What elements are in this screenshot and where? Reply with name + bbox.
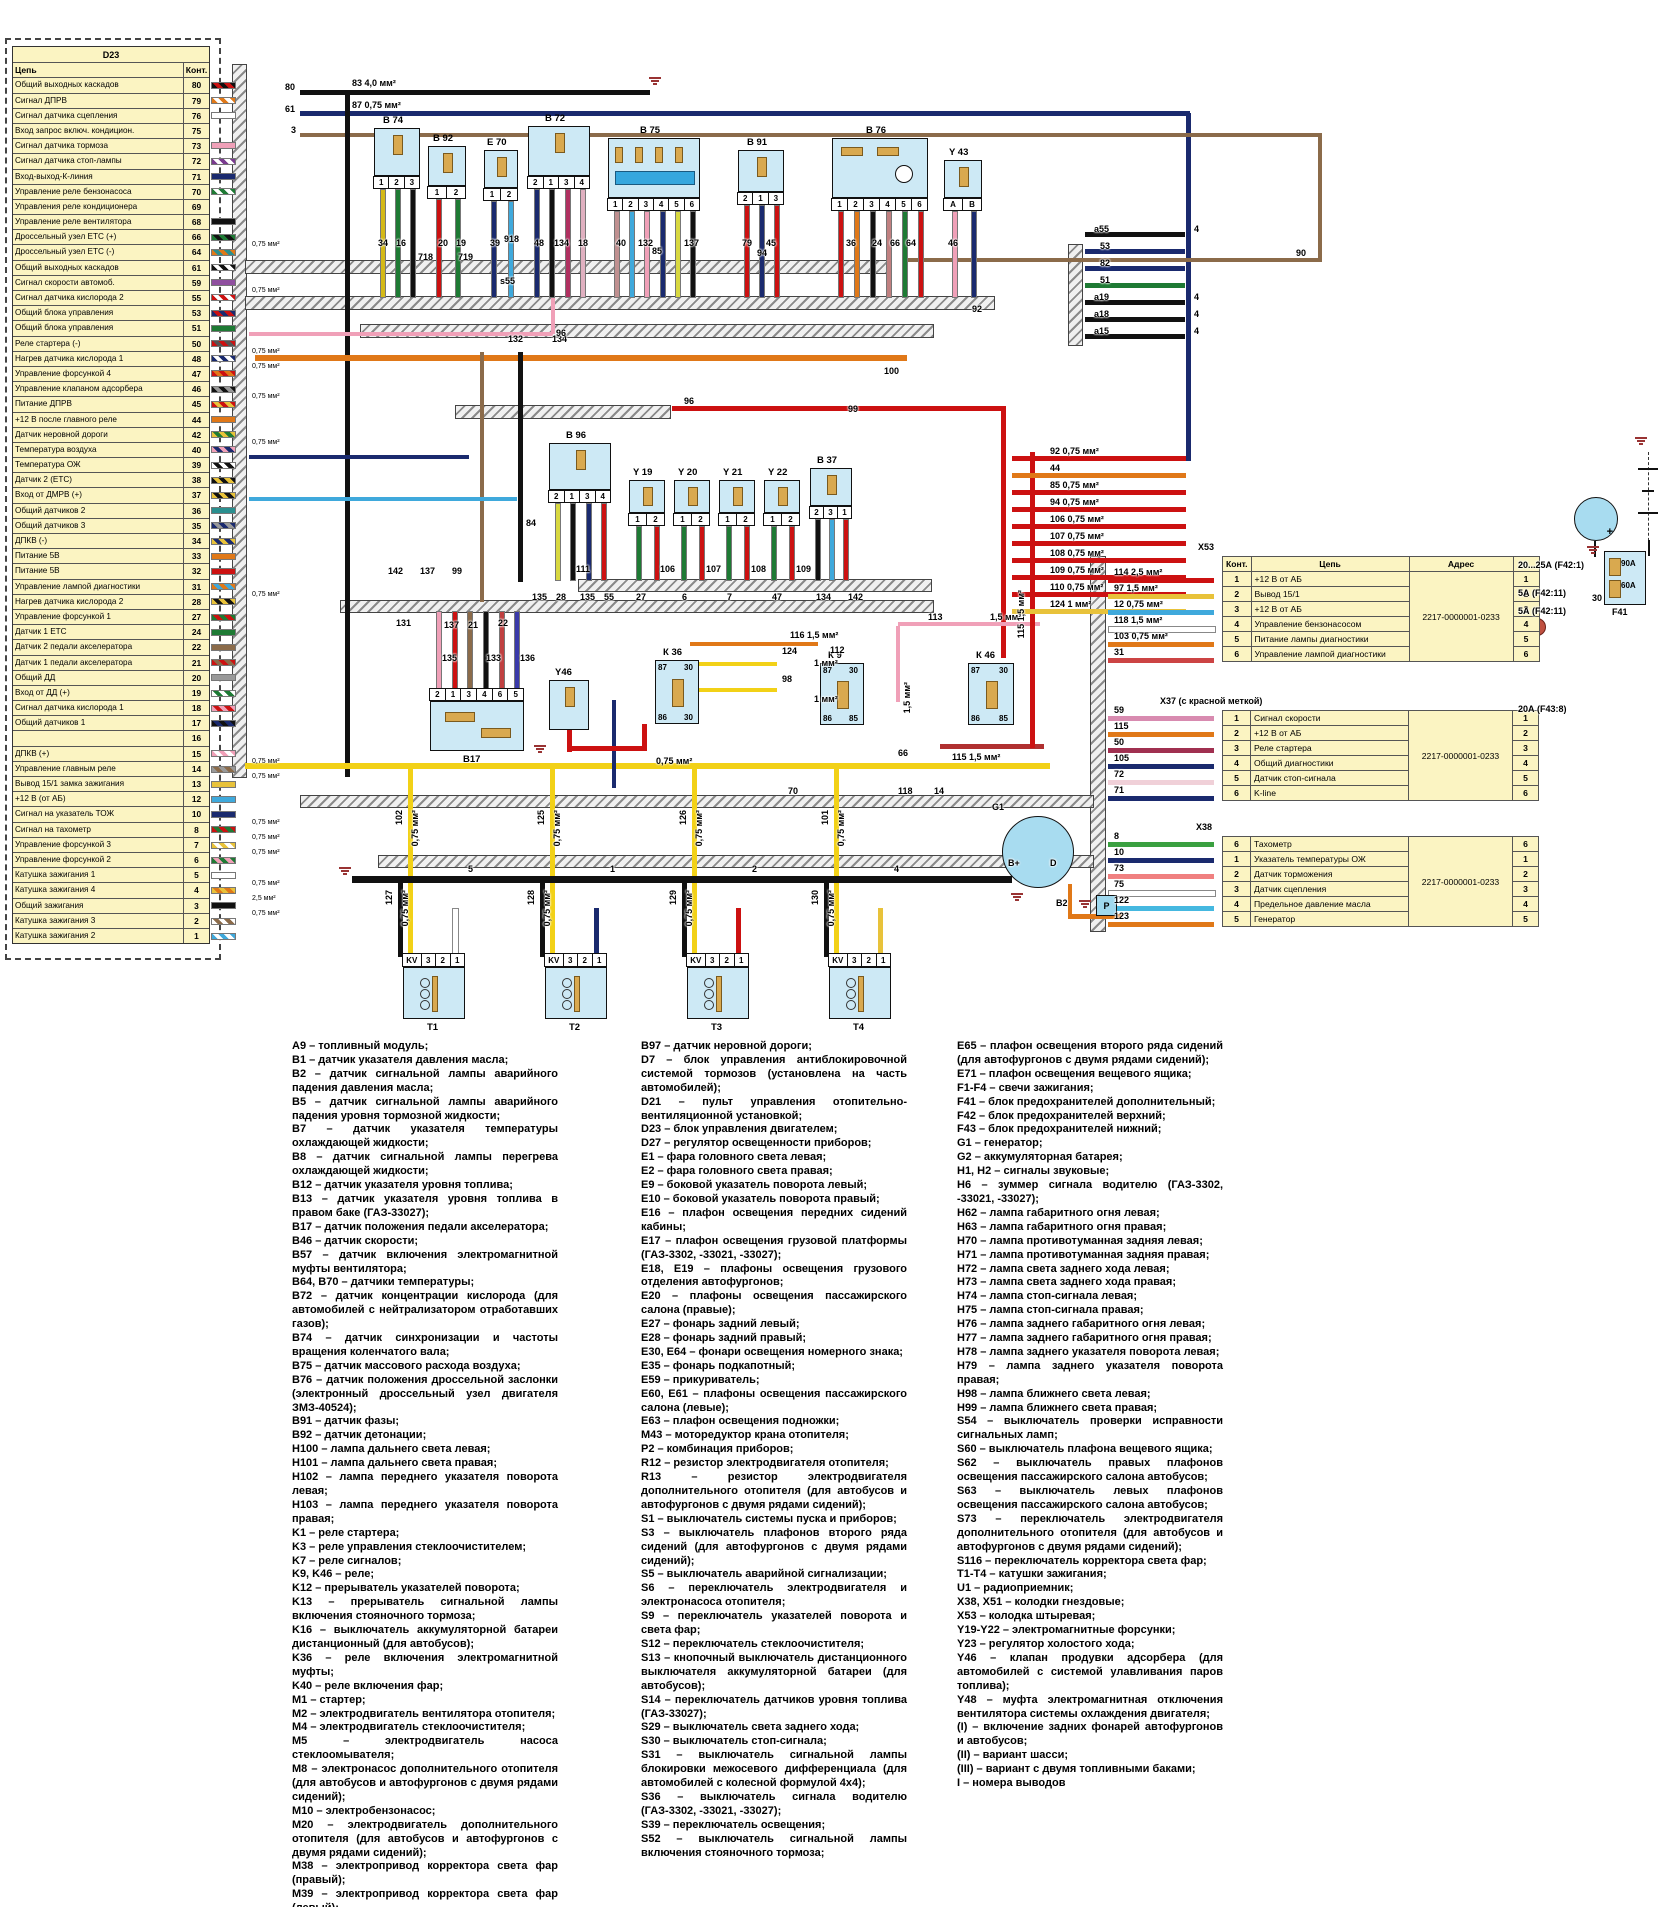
ecu-circuit-cell: Управление главным реле xyxy=(13,762,184,776)
wire-label: 0,75 мм² xyxy=(656,756,692,766)
wire-label: 106 0,75 мм² xyxy=(1050,514,1104,524)
pin-row: AB xyxy=(944,198,982,211)
legend-item: E1 – фара головного света левая; xyxy=(641,1151,907,1165)
legend-item: E16 – плафон освещения передних сидений … xyxy=(641,1207,907,1235)
wire-label: 1 xyxy=(610,864,615,874)
wire-label: 133 xyxy=(486,653,501,663)
legend-item: H6 – зуммер сигнала водителю (ГАЗ-3302, … xyxy=(957,1179,1223,1207)
ecu-circuit-cell: Питание ДПРВ xyxy=(13,397,184,411)
wire-label: 4 xyxy=(1194,224,1199,234)
coil-pin-row: KV321 xyxy=(545,953,607,967)
wire-label: 719 xyxy=(458,252,473,262)
legend-item: S30 – выключатель стоп-сигнала; xyxy=(641,1735,907,1749)
pin-cell: 5 xyxy=(895,198,912,211)
ecu-circuit-cell: Катушка зажигания 3 xyxy=(13,914,184,928)
legend-item: M8 – электронасос дополнительного отопит… xyxy=(292,1763,558,1805)
legend-item: S73 – переключатель электродвигателя доп… xyxy=(957,1513,1223,1555)
pin-row: 12 xyxy=(674,513,710,526)
connector-wire xyxy=(971,211,977,298)
legend-item: K36 – реле включения электромагнитной му… xyxy=(292,1652,558,1680)
wire-label: 118 xyxy=(898,786,913,796)
plug-table-title: Х37 (с красной меткой) xyxy=(1160,696,1262,706)
ecu-wire-stub xyxy=(211,492,236,499)
legend-item: E9 – боковой указатель поворота левый; xyxy=(641,1179,907,1193)
bundle-wire xyxy=(1012,473,1186,478)
wire-label: a55 xyxy=(1094,224,1109,234)
legend-item: H101 – лампа дальнего света правая; xyxy=(292,1457,558,1471)
connector-wire xyxy=(555,503,561,581)
wire-label: 3 xyxy=(291,125,296,135)
ecu-pin-cell: 18 xyxy=(184,701,209,715)
ecu-header-row: ЦепьКонт. xyxy=(13,62,209,77)
wire-segment xyxy=(672,406,1004,411)
legend-item: E17 – плафон освещения грузовой платформ… xyxy=(641,1235,907,1263)
connector-label: B 72 xyxy=(545,113,565,124)
wire-segment xyxy=(300,90,650,95)
connector-label: Y 20 xyxy=(678,467,697,478)
legend-item: D23 – блок управления двигателем; xyxy=(641,1123,907,1137)
wire-label: 106 xyxy=(660,564,675,574)
legend-item: S60 – выключатель плафона вещевого ящика… xyxy=(957,1443,1223,1457)
ecu-row: 16 xyxy=(13,730,209,745)
pin-row: 12 xyxy=(428,186,466,199)
connector-wire xyxy=(675,211,681,298)
ecu-row: Управление форсункой 37 xyxy=(13,837,209,852)
ecu-pin-cell: 32 xyxy=(184,564,209,578)
ecu-row: Управление клапаном адсорбера46 xyxy=(13,381,209,396)
legend-item: S31 – выключатель сигнальной лампы блоки… xyxy=(641,1749,907,1791)
pin-cell: 3 xyxy=(638,198,654,211)
ecu-circuit-cell: Сигнал на тахометр xyxy=(13,823,184,837)
ecu-pin-cell: 73 xyxy=(184,139,209,153)
ecu-circuit-cell: Общий блока управления xyxy=(13,321,184,335)
wire-label: 92 xyxy=(972,304,982,314)
pin-cell: 1 xyxy=(607,198,623,211)
connector-B17 xyxy=(430,701,524,751)
ecu-wire-stub xyxy=(211,249,236,256)
ecu-pin-cell: 16 xyxy=(184,731,209,745)
coil-pin-cell: KV xyxy=(544,953,564,967)
coil-winding xyxy=(420,989,430,999)
ecu-circuit-cell: Общий выходных каскадов xyxy=(13,261,184,275)
legend-item: B1 – датчик указателя давления масла; xyxy=(292,1054,558,1068)
ecu-circuit-cell: Сигнал датчика стоп-лампы xyxy=(13,154,184,168)
pin-row: 12 xyxy=(719,513,755,526)
legend-item: H75 – лампа стоп-сигнала правая; xyxy=(957,1304,1223,1318)
coil-winding xyxy=(420,978,430,988)
coil-winding xyxy=(846,1000,856,1010)
wire-label: 113 xyxy=(928,612,943,622)
ecu-wire-stub xyxy=(211,933,236,940)
legend-item: B57 – датчик включения электромагнитной … xyxy=(292,1249,558,1277)
wire-label: 16 xyxy=(396,238,406,248)
connector-label: B17 xyxy=(463,754,480,765)
wire-segment xyxy=(249,455,469,459)
wire-label: 87 0,75 мм² xyxy=(352,100,401,110)
fuse-60a-label: 60А xyxy=(1621,581,1636,590)
generator-label: G1 xyxy=(992,802,1004,812)
ecu-pin-cell: 33 xyxy=(184,549,209,563)
connector-wire xyxy=(483,611,489,690)
ground-icon xyxy=(1586,545,1600,554)
ecu-circuit-cell: Управление форсункой 3 xyxy=(13,838,184,852)
plug-wire-label: 103 0,75 мм² xyxy=(1114,631,1168,641)
connector-label: B 96 xyxy=(566,430,586,441)
legend-item: B46 – датчик скорости; xyxy=(292,1235,558,1249)
ecu-pin-cell: 3 xyxy=(184,899,209,913)
relay-pin-label: 85 xyxy=(999,714,1008,723)
pin-cell: 2 xyxy=(446,186,466,199)
pin-cell: 4 xyxy=(595,490,612,503)
connector-label: Y 43 xyxy=(949,147,968,158)
plug-wire-label: 50 xyxy=(1114,737,1124,747)
ecu-wire-stub xyxy=(211,325,236,332)
pin-cell: A xyxy=(943,198,963,211)
connector-wire xyxy=(744,526,750,581)
legend-item: B5 – датчик сигнальной лампы аварийного … xyxy=(292,1096,558,1124)
pin-cell: 2 xyxy=(622,198,638,211)
wire-label: 124 1 мм² xyxy=(1050,599,1091,609)
coil-core xyxy=(574,976,580,1012)
plug-wire xyxy=(1108,796,1214,801)
connector-B76 xyxy=(832,138,928,198)
wire-label: 4 xyxy=(894,864,899,874)
wire-label: 19 xyxy=(456,238,466,248)
ecu-circuit-cell: Управление форсункой 1 xyxy=(13,610,184,624)
connector-label: B 76 xyxy=(866,125,886,136)
pin-cell: 2 xyxy=(388,176,404,189)
plug-table-title: Х38 xyxy=(1196,822,1212,832)
ecu-wire-stub xyxy=(211,705,236,712)
wire-label: 0,75 мм² xyxy=(410,810,420,846)
ecu-row: Температура воздуха40 xyxy=(13,442,209,457)
coil-pin-row: KV321 xyxy=(403,953,465,967)
legend-item: H77 – лампа заднего габаритного огня пра… xyxy=(957,1332,1223,1346)
sensor-element xyxy=(959,167,969,187)
sensor-element xyxy=(688,487,698,506)
legend-item: (I) – включение задних фонарей автофурго… xyxy=(957,1721,1223,1749)
wire-label: 128 xyxy=(526,890,536,905)
ecu-pin-cell: 40 xyxy=(184,443,209,457)
pin-cell: 1 xyxy=(752,192,768,205)
battery-plus-label: + xyxy=(1607,526,1613,538)
ecu-pin-cell: 12 xyxy=(184,792,209,806)
wire-label: 108 xyxy=(751,564,766,574)
legend-item: B91 – датчик фазы; xyxy=(292,1415,558,1429)
pin-cell: 3 xyxy=(404,176,420,189)
wire-label: 132 xyxy=(508,334,523,344)
coil-T2 xyxy=(545,967,607,1019)
ecu-circuit-cell: Сигнал скорости автомоб. xyxy=(13,276,184,290)
ecu-row: Катушка зажигания 32 xyxy=(13,913,209,928)
ecu-wire-stub xyxy=(211,158,236,165)
legend-item: M1 – стартер; xyxy=(292,1694,558,1708)
ecu-wire-size-label: 0,75 мм² xyxy=(252,348,280,355)
ecu-row: Катушка зажигания 21 xyxy=(13,928,209,943)
legend-item: S116 – переключатель корректора света фа… xyxy=(957,1555,1223,1569)
ecu-pin-cell: 45 xyxy=(184,397,209,411)
plug-table-X37: 1Сигнал скорости2217-0000001-023312+12 В… xyxy=(1222,710,1539,801)
ecu-row: +12 В (от АБ)12 xyxy=(13,791,209,806)
pin-cell: 1 xyxy=(564,490,581,503)
ecu-row: Реле стартера (-)50 xyxy=(13,336,209,351)
legend-item: K1 – реле стартера; xyxy=(292,1527,558,1541)
connector-Y19 xyxy=(629,480,665,513)
pin-row: 12 xyxy=(764,513,800,526)
ecu-wire-size-label: 0,75 мм² xyxy=(252,819,280,826)
plug-wire-label: 97 1,5 мм² xyxy=(1114,583,1158,593)
ecu-wire-stub xyxy=(211,614,236,621)
legend-item: E27 – фонарь задний левый; xyxy=(641,1318,907,1332)
plug-wire-label: 8 xyxy=(1114,831,1119,841)
wire-label: 142 xyxy=(388,566,403,576)
ecu-circuit-cell: Общий датчиков 1 xyxy=(13,716,184,730)
pin-row: 213 xyxy=(738,192,784,205)
coil-label: T3 xyxy=(711,1022,722,1033)
plug-wire-label: 71 xyxy=(1114,785,1124,795)
ecu-circuit-cell: +12 В после главного реле xyxy=(13,413,184,427)
wire-label: 112 xyxy=(830,645,845,655)
ecu-wire-stub xyxy=(211,264,236,271)
ecu-circuit-cell: Температура ОЖ xyxy=(13,458,184,472)
legend-item: S36 – выключатель сигнала водителю (ГАЗ-… xyxy=(641,1791,907,1819)
connector-B91 xyxy=(738,150,784,192)
pin-cell: 2 xyxy=(737,192,753,205)
pin-row: 12 xyxy=(484,188,518,201)
ecu-row: Вход от ДД (+)19 xyxy=(13,685,209,700)
pin-cell: 3 xyxy=(863,198,880,211)
connector-label: Y 19 xyxy=(633,467,652,478)
fuse-box-f41: 90А 60А xyxy=(1604,551,1646,605)
wire-label: 0,75 мм² xyxy=(400,890,410,926)
wire-label: 115 1,5 мм² xyxy=(952,752,1000,762)
pin-cell: 1 xyxy=(763,513,782,526)
legend-item: R13 – резистор электродвигателя дополнит… xyxy=(641,1471,907,1513)
wire-segment xyxy=(550,769,555,957)
harness-bus xyxy=(578,579,932,592)
ecu-circuit-cell: Управление форсункой 4 xyxy=(13,367,184,381)
ecu-pin-cell: 1 xyxy=(184,929,209,943)
wire-label: 24 xyxy=(872,238,882,248)
sensor-element xyxy=(576,450,586,470)
ecu-circuit-cell: Катушка зажигания 1 xyxy=(13,868,184,882)
bundle-wire xyxy=(1012,524,1186,529)
legend-item: B12 – датчик указателя уровня топлива; xyxy=(292,1179,558,1193)
legend-item: B13 – датчик указателя уровня топлива в … xyxy=(292,1193,558,1221)
wire-label: 718 xyxy=(418,252,433,262)
wire-label: 36 xyxy=(846,238,856,248)
ecu-circuit-cell: ДПКВ (-) xyxy=(13,534,184,548)
pin-cell: B xyxy=(962,198,982,211)
sensor-element xyxy=(555,133,565,153)
legend-item: E10 – боковой указатель поворота правый; xyxy=(641,1193,907,1207)
sensor-element xyxy=(778,487,788,506)
wire-segment xyxy=(245,763,1050,769)
ecu-circuit-cell: Общий датчиков 2 xyxy=(13,504,184,518)
plug-wire-label: 12 0,75 мм² xyxy=(1114,599,1163,609)
coil-pin-cell: 3 xyxy=(847,953,862,967)
connector-B37 xyxy=(810,468,852,506)
legend-item: Y46 – клапан продувки адсорбера (для авт… xyxy=(957,1652,1223,1694)
sensor-element xyxy=(497,157,507,177)
ecu-wire-stub xyxy=(211,218,236,225)
wire-segment xyxy=(940,744,1044,749)
wire-label: 94 xyxy=(757,248,767,258)
wire-label: 55 xyxy=(604,592,614,602)
ecu-row: Общий датчиков 335 xyxy=(13,518,209,533)
legend-item: K9, K46 – реле; xyxy=(292,1568,558,1582)
pin-row: 123 xyxy=(374,176,420,189)
ecu-circuit-cell: Нагрев датчика кислорода 2 xyxy=(13,595,184,609)
plug-wire-label: 59 xyxy=(1114,705,1124,715)
ecu-wire-stub xyxy=(211,918,236,925)
legend-item: M39 – электропривод корректора света фар… xyxy=(292,1888,558,1907)
ecu-wire-size-label: 0,75 мм² xyxy=(252,393,280,400)
pin-cell: 6 xyxy=(492,688,509,701)
ecu-wire-stub xyxy=(211,842,236,849)
legend-item: B92 – датчик детонации; xyxy=(292,1429,558,1443)
coil-winding xyxy=(846,989,856,999)
ecu-wire-stub xyxy=(211,538,236,545)
relay-pin-label: 86 xyxy=(971,714,980,723)
plug-wire-label: 72 xyxy=(1114,769,1124,779)
coil-winding xyxy=(704,989,714,999)
ecu-pin-cell: 35 xyxy=(184,519,209,533)
ecu-row: Управление реле бензонасоса70 xyxy=(13,184,209,199)
wire-label: 124 xyxy=(782,646,797,656)
wire-label: 125 xyxy=(536,810,546,825)
ecu-row: Катушка зажигания 15 xyxy=(13,867,209,882)
wire-segment xyxy=(408,769,413,957)
legend-item: K40 – реле включения фар; xyxy=(292,1680,558,1694)
pin-row: 123456 xyxy=(608,198,700,211)
ecu-row: Управление форсункой 447 xyxy=(13,366,209,381)
wire-label: 99 xyxy=(848,404,858,414)
ecu-wire-stub xyxy=(211,857,236,864)
connector-wire xyxy=(829,519,835,581)
ecu-wire-size-label: 0,75 мм² xyxy=(252,439,280,446)
wire-label: 0,75 мм² xyxy=(552,810,562,846)
pin-cell: 2 xyxy=(500,188,518,201)
ecu-wire-stub xyxy=(211,796,236,803)
legend-item: E2 – фара головного света правая; xyxy=(641,1165,907,1179)
sensor-element xyxy=(393,135,403,155)
ecu-circuit-cell: Вход от ДД (+) xyxy=(13,686,184,700)
legend-item: K7 – реле сигналов; xyxy=(292,1555,558,1569)
ecu-wire-stub xyxy=(211,553,236,560)
ecu-pin-cell: 44 xyxy=(184,413,209,427)
plug-wire-label: 118 1,5 мм² xyxy=(1114,615,1162,625)
legend-item: S6 – переключатель электродвигателя и эл… xyxy=(641,1582,907,1610)
wire-label: 0,75 мм² xyxy=(826,890,836,926)
wire-label: 5А (F42:11) xyxy=(1518,606,1566,616)
legend-item: S39 – переключатель освещения; xyxy=(641,1819,907,1833)
wire-label: 98 xyxy=(782,674,792,684)
ecu-wire-stub xyxy=(211,173,236,180)
coil-T3 xyxy=(687,967,749,1019)
legend-item: Y19-Y22 – электромагнитные форсунки; xyxy=(957,1624,1223,1638)
wire-segment xyxy=(300,133,1322,137)
fuse-icon xyxy=(1609,580,1621,598)
fuse-90a-label: 90А xyxy=(1621,559,1636,568)
wire-label: 46 xyxy=(948,238,958,248)
sensor-element xyxy=(443,153,453,173)
connector-wire xyxy=(690,211,696,298)
ecu-circuit-cell: Сигнал на указатель ТОЖ xyxy=(13,807,184,821)
wire-label: 1 мм² xyxy=(814,694,838,704)
legend-item: S5 – выключатель аварийной сигнализации; xyxy=(641,1568,907,1582)
connector-label: Y 22 xyxy=(768,467,787,478)
relay-pin-label: 86 xyxy=(658,713,667,722)
resistor-element xyxy=(841,147,863,156)
ecu-pin-cell: 19 xyxy=(184,686,209,700)
wire-label: 137 xyxy=(444,620,459,630)
relay-label: К 46 xyxy=(976,650,995,661)
ecu-row: Общий блока управления51 xyxy=(13,320,209,335)
harness-bus xyxy=(455,405,671,419)
pin-cell: 2 xyxy=(781,513,800,526)
ecu-circuit-cell: Сигнал датчика кислорода 1 xyxy=(13,701,184,715)
wire-label: 83 4,0 мм² xyxy=(352,78,396,88)
wire-label: 27 xyxy=(636,592,646,602)
ecu-wire-stub xyxy=(211,720,236,727)
ecu-circuit-cell: Датчик 2 педали акселератора xyxy=(13,640,184,654)
legend-item: B74 – датчик синхронизации и частоты вра… xyxy=(292,1332,558,1360)
connector-label: B 91 xyxy=(747,137,767,148)
plug-table-X38: 6Тахометр2217-0000001-023361Указатель те… xyxy=(1222,836,1539,927)
connector-B74 xyxy=(374,128,420,176)
legend-item: B64, B70 – датчики температуры; xyxy=(292,1276,558,1290)
wire-label: 0,75 мм² xyxy=(836,810,846,846)
maf-element xyxy=(615,171,695,185)
connector-wire xyxy=(902,211,908,298)
ecu-circuit-cell: Сигнал датчика кислорода 2 xyxy=(13,291,184,305)
ecu-pin-cell: 34 xyxy=(184,534,209,548)
wire-label: 110 0,75 мм² xyxy=(1050,582,1103,592)
coil-pin-cell: 1 xyxy=(450,953,465,967)
relay-coil xyxy=(837,681,849,709)
plug-wire xyxy=(1108,922,1214,927)
connector-wire xyxy=(436,611,442,690)
legend-item: H78 – лампа заднего указателя поворота л… xyxy=(957,1346,1223,1360)
legend-item: F43 – блок предохранителей нижний; xyxy=(957,1123,1223,1137)
ecu-wire-stub xyxy=(211,82,236,89)
ecu-title: D23 xyxy=(13,47,209,62)
legend-item: M43 – моторедуктор крана отопителя; xyxy=(641,1429,907,1443)
coil-label: T2 xyxy=(569,1022,580,1033)
connector-label: B 74 xyxy=(383,115,403,126)
plug-wire-label: 75 xyxy=(1114,879,1124,889)
ecu-pin-cell: 6 xyxy=(184,853,209,867)
ecu-pin-cell: 28 xyxy=(184,595,209,609)
wire-label: 107 0,75 мм² xyxy=(1050,531,1104,541)
ecu-pin-cell: 37 xyxy=(184,488,209,502)
coil-pin-cell: 2 xyxy=(861,953,876,967)
ecu-wire-stub xyxy=(211,887,236,894)
ecu-row: Сигнал датчика стоп-лампы72 xyxy=(13,153,209,168)
ecu-circuit-cell xyxy=(13,731,184,745)
wire-label: 92 0,75 мм² xyxy=(1050,446,1099,456)
ecu-row: Общий датчиков 236 xyxy=(13,503,209,518)
legend-item: S3 – выключатель плафонов второго ряда с… xyxy=(641,1527,907,1569)
wire-segment xyxy=(690,642,818,646)
legend-item: B97 – датчик неровной дороги; xyxy=(641,1040,907,1054)
harness-bus xyxy=(300,795,1094,808)
wire-label: 4 xyxy=(1194,326,1199,336)
bundle-wire xyxy=(1012,541,1186,546)
ecu-wire-stub xyxy=(211,568,236,575)
legend-item: H79 – лампа заднего указателя поворота п… xyxy=(957,1360,1223,1388)
